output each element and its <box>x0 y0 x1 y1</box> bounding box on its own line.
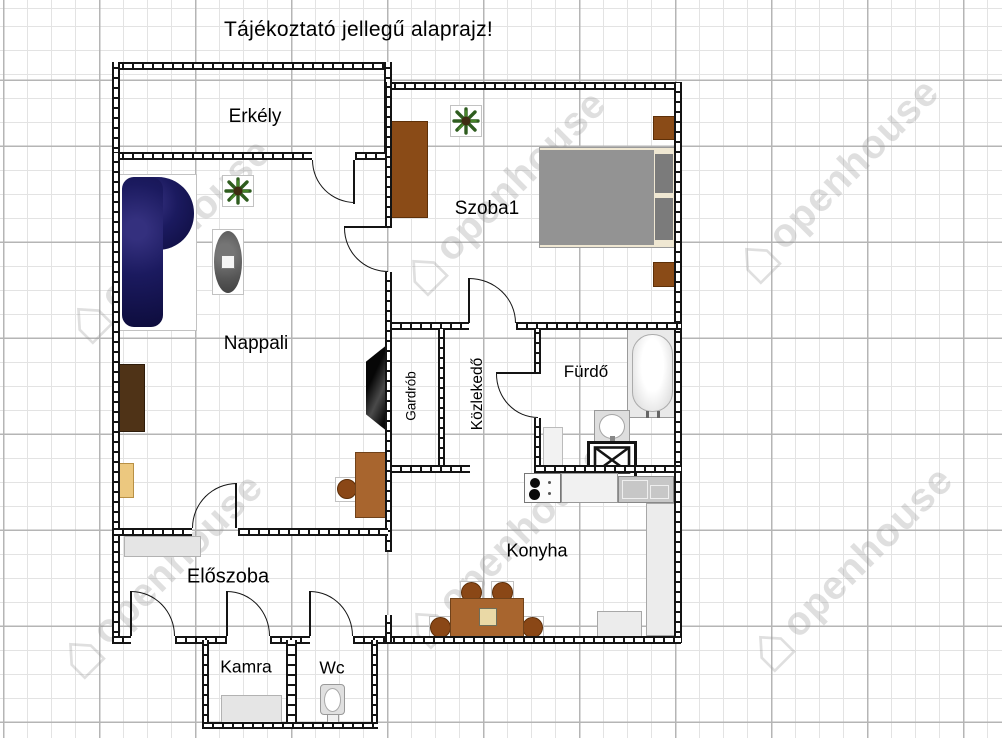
plant-icon <box>223 176 253 206</box>
stove-knob <box>548 492 551 495</box>
wall-spine <box>385 272 392 552</box>
wall-livingroom-top <box>112 152 312 160</box>
door-leaf <box>235 483 237 528</box>
wall-right-exterior <box>674 82 682 643</box>
wall-bottom-exterior <box>175 636 227 644</box>
wall-bottom-exterior <box>353 636 681 644</box>
sink-basin <box>622 480 648 499</box>
wall-bath-divider <box>534 329 541 374</box>
door-leaf <box>468 278 470 323</box>
bathtub-tap <box>657 411 660 418</box>
openhouse-logo-icon: ⌂ <box>755 631 784 660</box>
watermark: ⌂openhouse <box>742 458 963 679</box>
pillow <box>655 198 673 240</box>
kitchen-counter <box>561 473 618 503</box>
door-leaf <box>130 591 132 636</box>
stove <box>524 473 561 503</box>
pillow <box>655 154 673 193</box>
wall-bottom-exterior <box>112 636 131 644</box>
plant-box <box>222 175 254 207</box>
bath-cabinet <box>543 427 563 466</box>
floorplan-canvas: Tájékoztató jellegű alaprajz! ⌂openhouse… <box>0 0 1002 738</box>
wall-pantry-wc-bottom <box>202 722 378 729</box>
wardrobe <box>390 121 428 218</box>
plant-box <box>450 105 482 137</box>
room-label-bathroom: Fürdő <box>564 362 608 382</box>
openhouse-logo-icon: ⌂ <box>741 243 770 272</box>
room-label-kitchen: Konyha <box>506 541 567 562</box>
bed-mattress <box>539 150 654 245</box>
door-arc-livingroom <box>192 483 237 528</box>
wall-pantry-wc-divider <box>286 640 297 726</box>
bathtub-tap <box>646 411 649 418</box>
openhouse-logo-icon: ⌂ <box>65 638 94 667</box>
wall-closet-divider <box>438 329 445 469</box>
room-label-bedroom: Szoba1 <box>455 198 519 220</box>
dining-chair <box>522 617 543 638</box>
nightstand <box>653 116 675 140</box>
nightstand <box>653 262 675 287</box>
kitchen-counter-side <box>646 503 676 636</box>
room-label-hall: Előszoba <box>187 566 269 589</box>
wall-left-exterior <box>112 152 120 643</box>
plant-icon <box>451 106 481 136</box>
dining-chair <box>430 617 451 638</box>
room-label-pantry: Kamra <box>220 657 272 678</box>
room-label-wc: Wc <box>319 658 344 679</box>
wall-closet-bottom <box>390 465 470 473</box>
toilet-bowl <box>324 688 341 712</box>
watermark: ⌂openhouse <box>728 70 949 291</box>
wall-hall-top <box>112 528 192 536</box>
wall-wc-right <box>371 640 378 726</box>
door-leaf <box>309 591 311 636</box>
stove-burner <box>530 478 540 488</box>
door-arc-balcony <box>312 160 355 203</box>
door-leaf <box>496 372 538 374</box>
openhouse-logo-icon: ⌂ <box>408 255 437 284</box>
wall-hall-top <box>238 528 388 536</box>
desk <box>355 452 388 518</box>
wall-bedroom-bottom <box>390 322 469 330</box>
room-label-closet: Gardrób <box>404 371 419 421</box>
hall-shelf <box>124 536 201 557</box>
watermark-text: openhouse <box>773 458 962 647</box>
wall-pantry-left <box>202 640 209 726</box>
sofa <box>122 177 163 327</box>
stove-burner <box>529 489 540 500</box>
door-arc-bedroom-hall <box>469 278 516 323</box>
table-object <box>221 255 235 269</box>
door-arc-bedroom <box>344 228 388 272</box>
table-object <box>479 608 497 626</box>
door-leaf <box>353 160 355 204</box>
wall-spine <box>385 82 392 228</box>
door-arc-pantry <box>227 591 270 636</box>
plan-title: Tájékoztató jellegű alaprajz! <box>224 18 493 42</box>
door-leaf <box>226 591 228 636</box>
watermark-text: openhouse <box>759 70 948 259</box>
kitchen-cabinet <box>597 611 642 637</box>
wall-balcony-top <box>112 62 390 70</box>
wall-bedroom-top <box>384 82 681 90</box>
desk-chair <box>337 479 357 499</box>
room-label-balcony: Erkély <box>229 106 282 128</box>
room-label-livingroom: Nappali <box>224 333 288 355</box>
wall-bath-divider <box>534 418 541 468</box>
stove-knob <box>548 481 551 484</box>
wall-balcony-left <box>112 62 120 159</box>
openhouse-logo-icon: ⌂ <box>73 303 102 332</box>
door-arc-bathroom <box>496 374 538 418</box>
wall-bath-bottom <box>534 465 681 473</box>
door-leaf <box>344 226 388 228</box>
room-label-corridor: Közlekedő <box>469 358 487 430</box>
sideboard <box>117 364 145 432</box>
pantry-shelf <box>221 695 282 723</box>
sink-basin <box>650 485 669 499</box>
bathtub <box>632 334 673 412</box>
door-arc-wc <box>310 591 353 636</box>
wall-spine-stub <box>385 615 392 644</box>
